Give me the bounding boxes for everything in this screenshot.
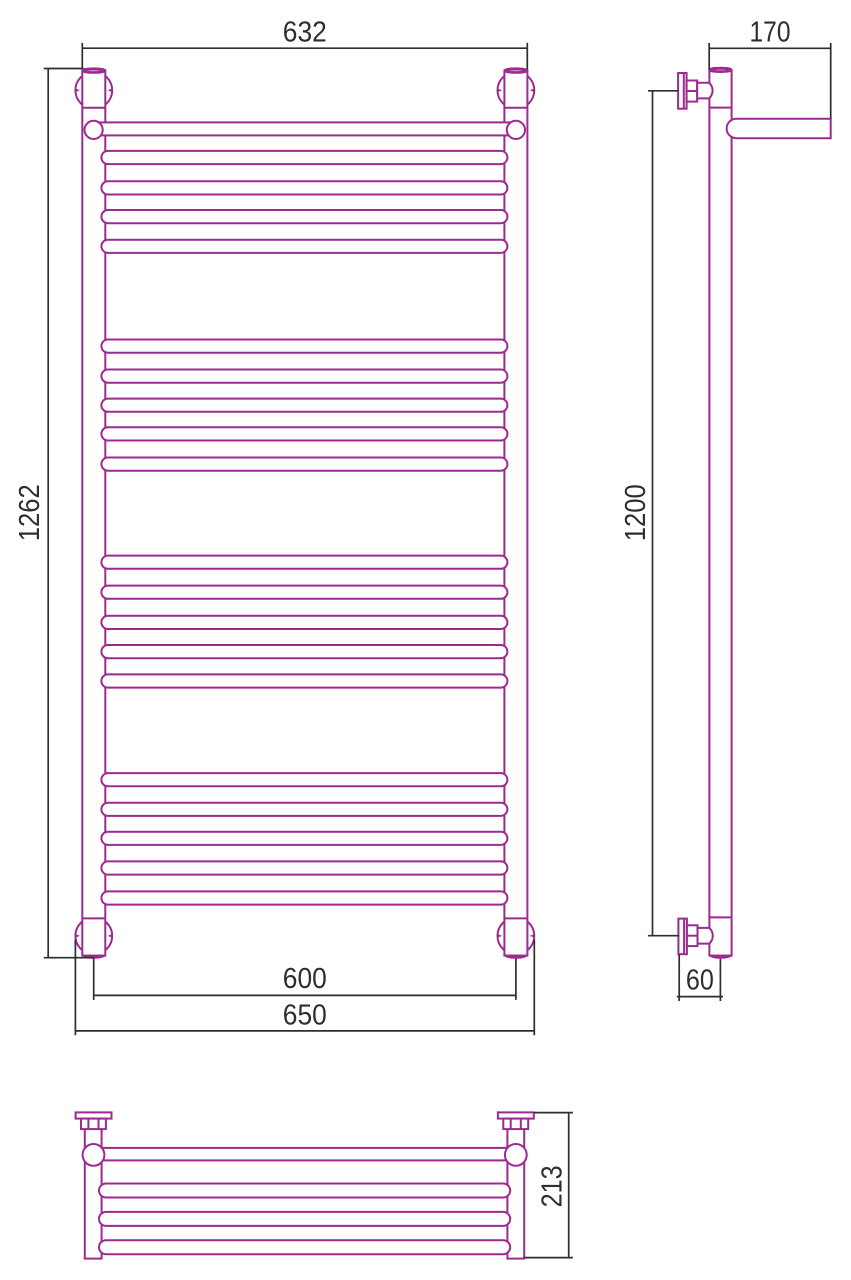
svg-text:600: 600	[283, 963, 327, 995]
svg-text:170: 170	[750, 16, 791, 48]
svg-text:1200: 1200	[620, 484, 652, 541]
svg-text:213: 213	[537, 1165, 569, 1207]
svg-text:60: 60	[686, 965, 714, 997]
svg-text:632: 632	[283, 16, 327, 48]
svg-text:650: 650	[283, 1000, 327, 1032]
svg-text:1262: 1262	[14, 484, 46, 541]
